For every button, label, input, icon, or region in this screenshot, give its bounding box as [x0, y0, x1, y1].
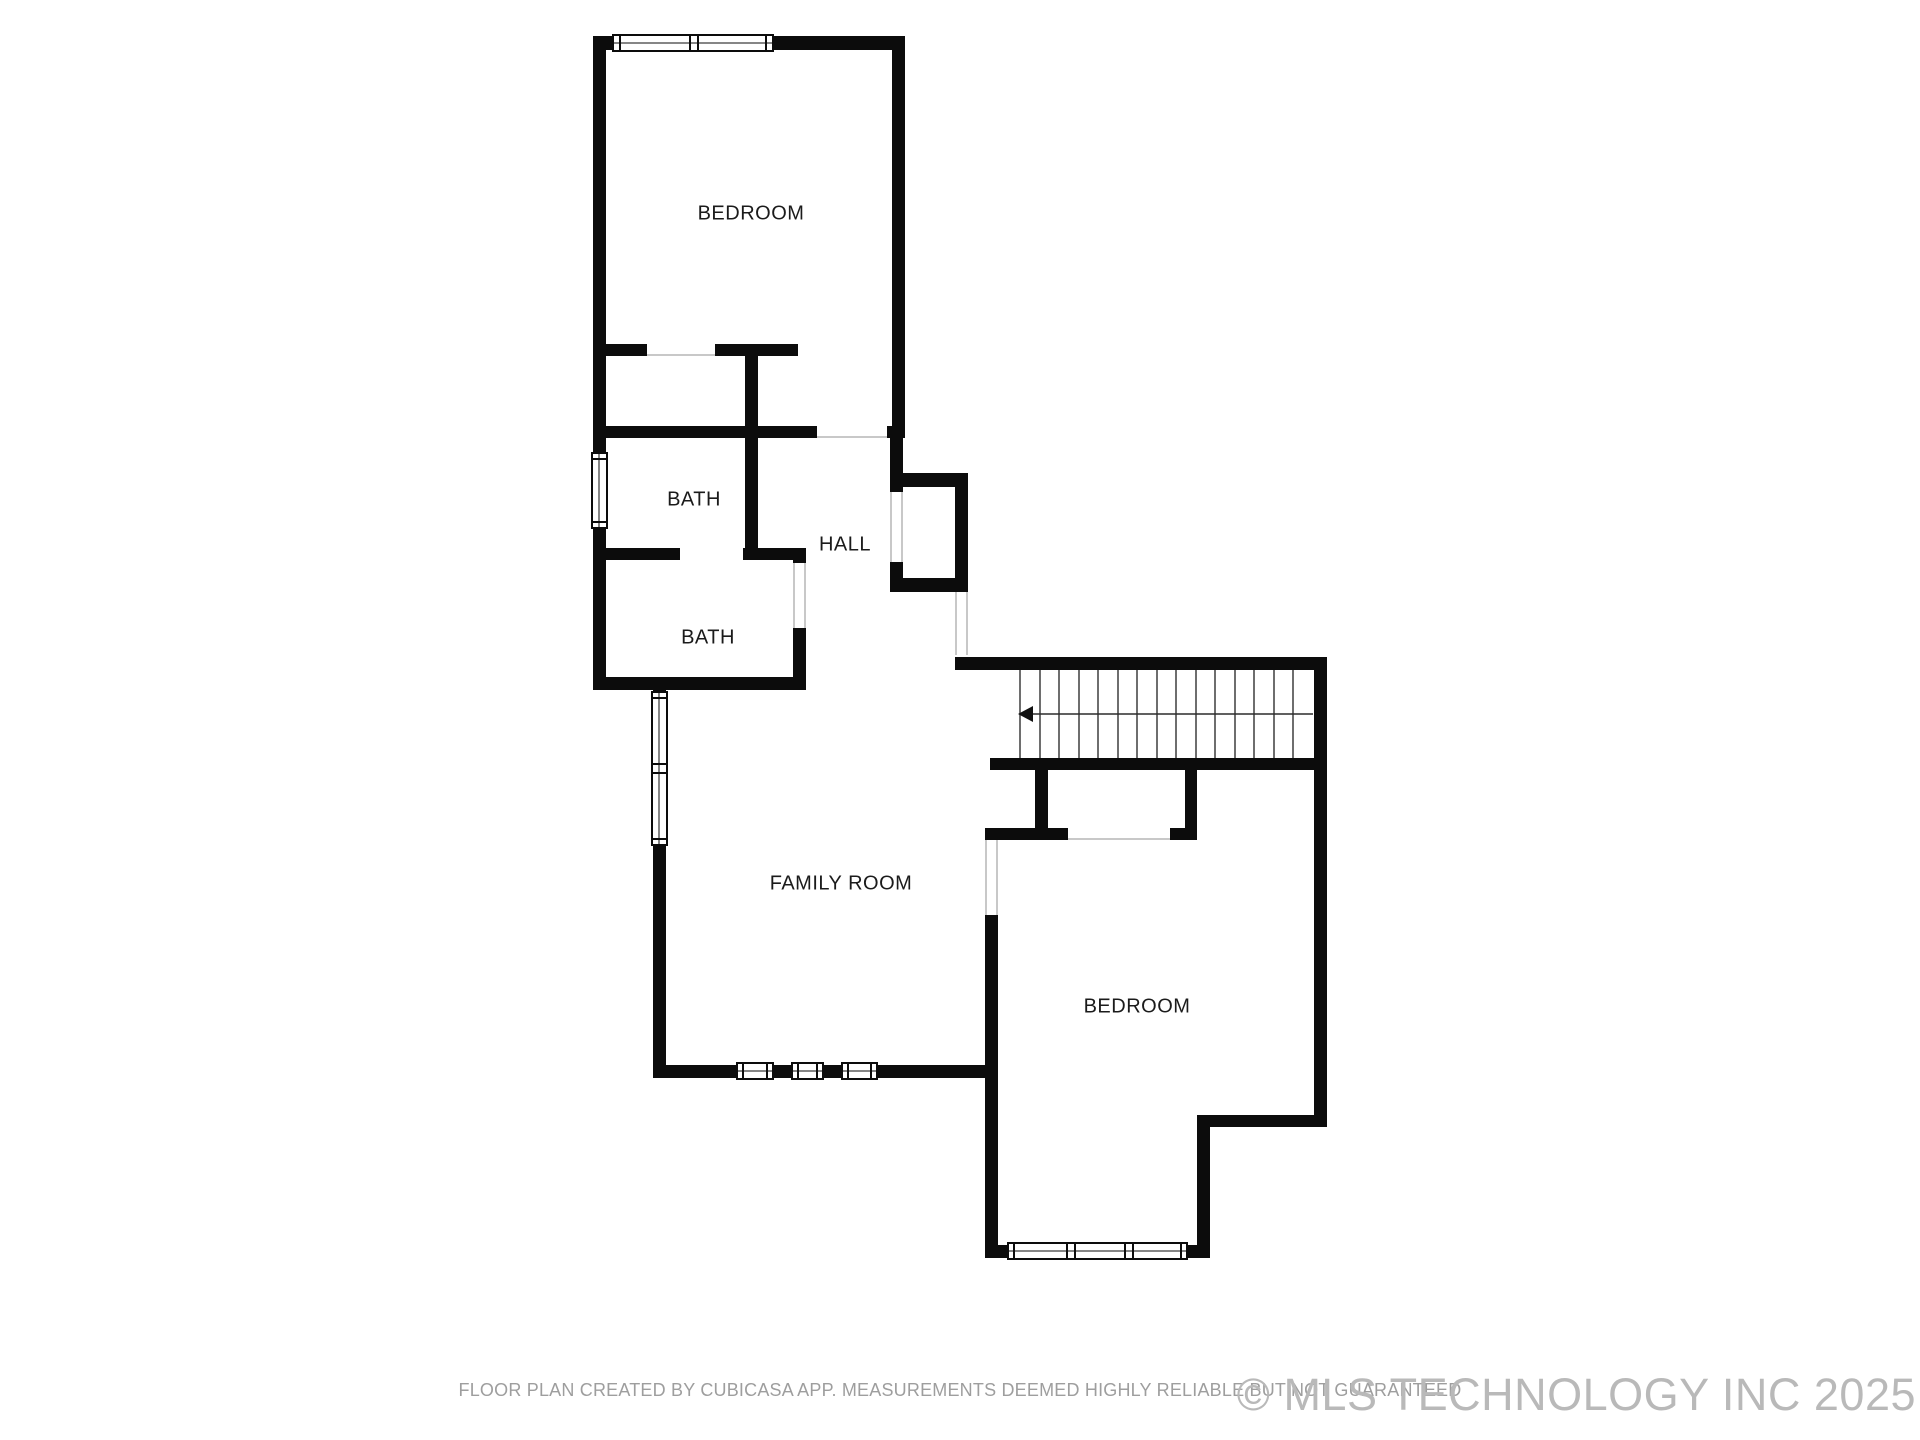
wall-bath-divider-left: [593, 548, 680, 560]
wall-mid-vertical: [745, 344, 758, 560]
window-family-bottom-1: [737, 1063, 773, 1079]
window-family-bottom-3: [842, 1063, 877, 1079]
wall-right: [1314, 657, 1327, 1127]
wall-bedroom-bottom-left: [593, 344, 647, 356]
room-label-bedroom-bottom: BEDROOM: [1084, 995, 1191, 1017]
wall-closet-stub-left: [1035, 770, 1048, 828]
wall-family-bottom: [653, 1065, 998, 1078]
copyright-text: © MLS TECHNOLOGY INC 2025: [1237, 1372, 1916, 1417]
wall-closet-bottom-left: [990, 828, 1068, 840]
wall-bedroom-right: [892, 36, 905, 438]
room-labels: BEDROOM BATH HALL BATH FAMILY ROOM BEDRO…: [667, 202, 1190, 1017]
window-family-left: [652, 692, 667, 845]
wall-bedroom2-step: [1197, 1115, 1327, 1127]
stairs: [1018, 670, 1313, 758]
window-bedroom-top: [613, 35, 773, 51]
window-family-bottom-2: [792, 1063, 823, 1079]
wall-notch-right: [955, 473, 968, 592]
wall-bath1-top: [593, 426, 817, 438]
window-bedroom-bottom: [1008, 1243, 1187, 1259]
wall-stairs-top: [955, 657, 1327, 670]
room-label-hall: HALL: [819, 533, 871, 555]
wall-bedroom2-notch-right: [1197, 1115, 1210, 1255]
room-label-bath-2: BATH: [681, 626, 735, 648]
wall-bath2-right-upper: [793, 548, 806, 563]
wall-left-upper: [593, 36, 606, 690]
room-label-family-room: FAMILY ROOM: [770, 872, 913, 894]
wall-stairs-bottom: [990, 758, 1315, 770]
floor-plan-page: BEDROOM BATH HALL BATH FAMILY ROOM BEDRO…: [0, 0, 1920, 1440]
wall-bath2-bottom: [593, 677, 806, 690]
wall-notch-left-stub: [890, 562, 903, 592]
floor-plan-drawing: BEDROOM BATH HALL BATH FAMILY ROOM BEDRO…: [0, 0, 1920, 1440]
window-bath1: [592, 453, 607, 528]
room-label-bath-1: BATH: [667, 488, 721, 510]
wall-family-bedroom: [985, 915, 998, 1258]
wall-closet-stub-right-foot: [1170, 828, 1197, 840]
room-label-bedroom-top: BEDROOM: [698, 202, 805, 224]
